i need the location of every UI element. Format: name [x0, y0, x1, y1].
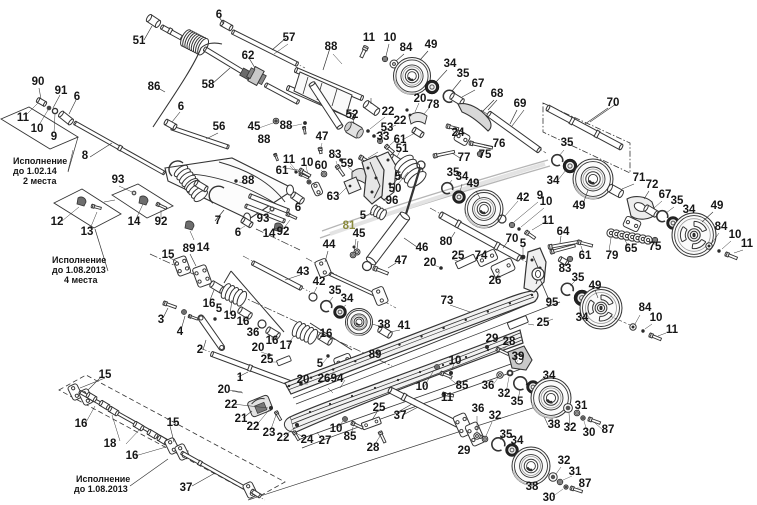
svg-text:6: 6: [295, 202, 301, 214]
svg-text:до 1.02.14: до 1.02.14: [13, 166, 57, 176]
svg-text:83: 83: [329, 149, 342, 161]
svg-text:92: 92: [155, 216, 168, 228]
svg-text:35: 35: [457, 68, 470, 80]
svg-text:67: 67: [472, 78, 485, 90]
svg-text:47: 47: [316, 131, 329, 143]
svg-text:5: 5: [317, 358, 324, 370]
svg-text:79: 79: [606, 250, 619, 262]
svg-text:10: 10: [416, 381, 429, 393]
svg-text:4: 4: [177, 326, 184, 338]
svg-text:16: 16: [237, 316, 250, 328]
svg-text:14: 14: [263, 228, 276, 240]
svg-text:60: 60: [315, 160, 328, 172]
svg-text:87: 87: [579, 478, 592, 490]
svg-text:16: 16: [203, 298, 216, 310]
svg-text:70: 70: [506, 233, 519, 245]
svg-text:74: 74: [475, 250, 488, 262]
svg-text:84: 84: [715, 221, 728, 233]
svg-text:65: 65: [625, 243, 638, 255]
svg-text:34: 34: [547, 175, 560, 187]
svg-text:16: 16: [126, 450, 139, 462]
svg-text:73: 73: [441, 295, 454, 307]
svg-text:64: 64: [557, 226, 570, 238]
svg-text:34: 34: [683, 204, 696, 216]
svg-text:69: 69: [514, 98, 527, 110]
svg-text:10: 10: [31, 123, 44, 135]
svg-text:11: 11: [542, 215, 555, 227]
svg-text:62: 62: [242, 50, 255, 62]
svg-text:29: 29: [486, 333, 499, 345]
svg-text:47: 47: [395, 255, 408, 267]
svg-text:10: 10: [650, 312, 663, 324]
svg-text:95: 95: [546, 297, 559, 309]
svg-text:6: 6: [235, 227, 241, 239]
svg-text:25: 25: [452, 250, 465, 262]
svg-text:28: 28: [367, 442, 380, 454]
svg-text:6: 6: [74, 91, 80, 103]
svg-text:28: 28: [503, 336, 516, 348]
svg-text:9: 9: [51, 131, 57, 143]
svg-text:38: 38: [526, 481, 539, 493]
svg-text:91: 91: [55, 85, 68, 97]
svg-text:61: 61: [579, 250, 592, 262]
svg-text:7: 7: [215, 215, 221, 227]
svg-text:20: 20: [218, 384, 231, 396]
svg-text:81: 81: [343, 220, 356, 232]
svg-text:67: 67: [659, 189, 672, 201]
svg-text:33: 33: [377, 131, 390, 143]
svg-text:2: 2: [197, 344, 203, 356]
svg-text:36: 36: [482, 380, 495, 392]
svg-text:22: 22: [247, 421, 260, 433]
svg-text:5: 5: [360, 210, 367, 222]
svg-text:51: 51: [396, 143, 409, 155]
svg-text:25: 25: [373, 402, 386, 414]
svg-text:49: 49: [589, 280, 602, 292]
svg-text:18: 18: [104, 438, 117, 450]
svg-text:75: 75: [649, 241, 662, 253]
svg-text:22: 22: [277, 432, 290, 444]
svg-text:15: 15: [162, 249, 175, 261]
svg-text:36: 36: [472, 403, 485, 415]
svg-text:96: 96: [386, 195, 399, 207]
svg-text:5: 5: [395, 171, 402, 183]
svg-text:37: 37: [180, 482, 193, 494]
svg-text:10: 10: [540, 196, 553, 208]
svg-text:20: 20: [414, 93, 427, 105]
svg-text:34: 34: [576, 312, 589, 324]
svg-text:85: 85: [344, 431, 357, 443]
svg-text:12: 12: [51, 216, 64, 228]
svg-text:11: 11: [741, 238, 754, 250]
svg-text:59: 59: [341, 158, 354, 170]
svg-text:94: 94: [331, 373, 344, 385]
svg-text:10: 10: [330, 423, 343, 435]
svg-text:26: 26: [318, 373, 331, 385]
svg-text:38: 38: [548, 419, 561, 431]
svg-text:93: 93: [257, 213, 270, 225]
svg-text:16: 16: [75, 418, 88, 430]
svg-text:Исполнение: Исполнение: [76, 474, 130, 484]
svg-text:63: 63: [327, 191, 340, 203]
svg-text:71: 71: [633, 172, 646, 184]
svg-text:10: 10: [301, 157, 314, 169]
svg-text:20: 20: [252, 342, 265, 354]
svg-text:56: 56: [213, 121, 226, 133]
svg-text:16: 16: [266, 335, 279, 347]
svg-text:25: 25: [261, 354, 274, 366]
svg-text:72: 72: [646, 179, 659, 191]
svg-text:до 1.08.2013: до 1.08.2013: [52, 265, 106, 275]
svg-text:50: 50: [389, 183, 402, 195]
svg-text:14: 14: [128, 216, 141, 228]
svg-text:2 места: 2 места: [23, 176, 57, 186]
svg-text:31: 31: [569, 466, 582, 478]
svg-text:93: 93: [112, 174, 125, 186]
svg-text:34: 34: [543, 370, 556, 382]
svg-text:90: 90: [32, 76, 45, 88]
svg-text:13: 13: [81, 226, 94, 238]
svg-text:49: 49: [573, 200, 586, 212]
svg-text:80: 80: [440, 236, 453, 248]
svg-text:11: 11: [441, 392, 454, 404]
svg-text:44: 44: [323, 239, 336, 251]
svg-text:15: 15: [167, 417, 180, 429]
svg-text:11: 11: [666, 324, 679, 336]
svg-text:31: 31: [575, 400, 588, 412]
svg-text:89: 89: [183, 243, 196, 255]
svg-text:35: 35: [572, 272, 585, 284]
svg-text:19: 19: [224, 310, 237, 322]
svg-text:5: 5: [216, 303, 223, 315]
svg-text:87: 87: [602, 424, 615, 436]
svg-text:4 места: 4 места: [64, 275, 98, 285]
svg-text:78: 78: [427, 99, 440, 111]
svg-text:16: 16: [320, 328, 333, 340]
svg-text:88: 88: [280, 120, 293, 132]
svg-text:30: 30: [583, 427, 596, 439]
svg-text:35: 35: [561, 137, 574, 149]
svg-text:10: 10: [729, 229, 742, 241]
svg-text:88: 88: [325, 41, 338, 53]
svg-text:17: 17: [280, 340, 293, 352]
svg-text:43: 43: [297, 266, 310, 278]
svg-text:68: 68: [491, 88, 504, 100]
svg-text:46: 46: [416, 242, 429, 254]
svg-text:34: 34: [511, 435, 524, 447]
svg-text:25: 25: [537, 317, 550, 329]
svg-text:26: 26: [489, 275, 502, 287]
svg-text:3: 3: [158, 314, 164, 326]
svg-text:5: 5: [520, 238, 527, 250]
svg-text:89: 89: [369, 349, 382, 361]
svg-text:49: 49: [425, 39, 438, 51]
svg-text:37: 37: [394, 410, 407, 422]
svg-text:41: 41: [398, 320, 411, 332]
svg-text:34: 34: [341, 293, 354, 305]
svg-text:49: 49: [467, 178, 480, 190]
svg-text:49: 49: [711, 200, 724, 212]
svg-text:22: 22: [382, 106, 395, 118]
svg-text:77: 77: [458, 152, 471, 164]
svg-text:27: 27: [319, 435, 332, 447]
svg-text:85: 85: [456, 380, 469, 392]
svg-text:36: 36: [247, 327, 260, 339]
svg-text:6: 6: [216, 9, 222, 21]
svg-text:20: 20: [297, 374, 310, 386]
svg-text:32: 32: [564, 422, 577, 434]
svg-text:Исполнение: Исполнение: [13, 156, 67, 166]
svg-text:52: 52: [346, 109, 359, 121]
svg-text:1: 1: [237, 372, 244, 384]
svg-text:75: 75: [479, 149, 492, 161]
svg-text:10: 10: [384, 32, 397, 44]
svg-text:35: 35: [511, 396, 524, 408]
svg-text:42: 42: [517, 192, 530, 204]
svg-text:22: 22: [225, 399, 238, 411]
svg-text:88: 88: [242, 175, 255, 187]
svg-text:6: 6: [178, 101, 184, 113]
svg-text:22: 22: [394, 115, 407, 127]
svg-text:38: 38: [378, 319, 391, 331]
svg-text:34: 34: [456, 171, 469, 183]
svg-text:30: 30: [543, 492, 556, 504]
svg-text:92: 92: [277, 226, 290, 238]
svg-text:45: 45: [248, 121, 261, 133]
svg-text:32: 32: [498, 388, 511, 400]
svg-text:11: 11: [363, 32, 376, 44]
svg-text:15: 15: [99, 369, 112, 381]
svg-text:61: 61: [276, 165, 289, 177]
svg-text:24: 24: [452, 127, 465, 139]
svg-text:76: 76: [493, 138, 506, 150]
svg-text:14: 14: [197, 242, 210, 254]
svg-text:до 1.08.2013: до 1.08.2013: [74, 484, 128, 494]
svg-text:58: 58: [202, 79, 215, 91]
svg-text:39: 39: [512, 351, 525, 363]
svg-text:10: 10: [449, 355, 462, 367]
svg-text:23: 23: [263, 427, 276, 439]
svg-text:29: 29: [458, 445, 471, 457]
svg-text:88: 88: [258, 134, 271, 146]
svg-text:70: 70: [607, 97, 620, 109]
svg-text:83: 83: [559, 263, 572, 275]
svg-text:84: 84: [400, 42, 413, 54]
svg-text:51: 51: [133, 35, 146, 47]
svg-text:Исполнение: Исполнение: [52, 255, 106, 265]
svg-text:32: 32: [489, 410, 502, 422]
svg-text:24: 24: [301, 434, 314, 446]
svg-text:42: 42: [313, 276, 326, 288]
svg-text:11: 11: [17, 112, 30, 124]
svg-text:20: 20: [424, 257, 437, 269]
svg-text:86: 86: [148, 81, 161, 93]
svg-text:8: 8: [82, 150, 89, 162]
svg-text:34: 34: [444, 58, 457, 70]
svg-text:57: 57: [283, 32, 296, 44]
